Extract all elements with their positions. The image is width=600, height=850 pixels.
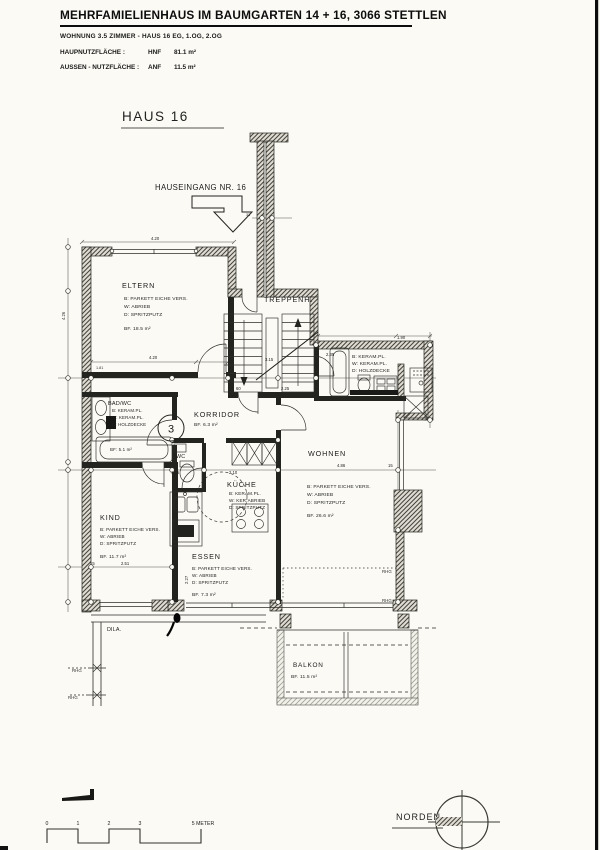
haus-label-group: HAUS 16 HAUSEINGANG NR. 16 bbox=[121, 109, 252, 232]
dim-left-small: 1.81 bbox=[96, 366, 103, 370]
dim-stair-width: 3.15 bbox=[265, 357, 274, 362]
balkon-area: BF. 11.5 m² bbox=[291, 674, 318, 680]
room-eltern-label: ELTERN bbox=[122, 281, 155, 290]
dim-kind-wall: 15 bbox=[90, 561, 95, 566]
scale-tick-1: 1 bbox=[77, 821, 80, 827]
kueche-wall-spec: W: KER.ABRIEB bbox=[229, 498, 265, 503]
floor-plan-drawing: HAUS 16 HAUSEINGANG NR. 16 bbox=[0, 0, 600, 850]
essen-ceiling-spec: D: SPRITZPUTZ bbox=[192, 580, 228, 585]
badwc-ceiling-spec: D: HOLZDECKE bbox=[112, 422, 146, 427]
room-badwc-label: BAD/WC bbox=[108, 401, 131, 407]
kind-area: BF. 11.7 m² bbox=[100, 554, 127, 560]
eltern-wall-spec: W: ABRIEB bbox=[124, 304, 150, 310]
staircase bbox=[224, 314, 318, 392]
scanned-floor-plan-page: MEHRFAMIELIENHAUS IM BAUMGARTEN 14 + 16,… bbox=[0, 0, 600, 850]
room-wc-label: WC bbox=[176, 454, 185, 460]
apartment-number: 3 bbox=[168, 424, 174, 436]
dim-wohnen-wall: 15 bbox=[388, 463, 393, 468]
badog-ceiling-spec: D: HOLZDECKE bbox=[352, 368, 391, 374]
entrance-label: HAUSEINGANG NR. 16 bbox=[155, 183, 246, 192]
eltern-floor-spec: B: PARKETT EICHE VERS. bbox=[124, 296, 188, 302]
scale-tick-3: 3 bbox=[139, 821, 142, 827]
exterior-walls bbox=[82, 133, 433, 628]
dim-entry-small: 33 bbox=[246, 213, 250, 217]
room-balkon-label: BALKON bbox=[293, 662, 324, 669]
dim-top-width: 4.20 bbox=[151, 236, 160, 241]
kitchen-fixtures bbox=[170, 441, 277, 546]
norden-label: NORDEN bbox=[396, 812, 441, 822]
dila-label: DILA. bbox=[107, 627, 121, 633]
kind-wall-spec: W: ABRIEB bbox=[100, 534, 125, 539]
essen-area: BF. 7.3 m² bbox=[192, 592, 216, 598]
kueche-floor-spec: B: KERAM.PL. bbox=[229, 491, 261, 496]
badwc-floor-spec: B: KERAM.PL. bbox=[112, 408, 143, 413]
wohnen-floor-spec: B: PARKETT EICHE VERS. bbox=[307, 484, 371, 490]
eltern-area: BF. 18.5 m² bbox=[124, 326, 151, 332]
room-kind-label: KIND bbox=[100, 513, 121, 522]
scale-end-label: 5 METER bbox=[192, 821, 215, 827]
wohnen-area: BF. 26.6 m² bbox=[307, 513, 334, 519]
wohnen-wall-spec: W: ABRIEB bbox=[307, 492, 333, 498]
room-treppenhaus-label: TREPPENH. bbox=[264, 295, 313, 304]
essen-wall-spec: W: ABRIEB bbox=[192, 573, 217, 578]
dim-kueche-width: 2.10 bbox=[229, 470, 238, 475]
rhg-label-4: RHG bbox=[382, 598, 392, 603]
kind-floor-spec: B: PARKETT EICHE VERS. bbox=[100, 527, 160, 532]
kind-ceiling-spec: D: SPRITZPUTZ bbox=[100, 541, 136, 546]
dim-wc-width: 1.35 bbox=[171, 470, 180, 475]
dim-eltern-height: 4.26 bbox=[61, 311, 66, 320]
eltern-ceiling-spec: D: SPRITZPUTZ bbox=[124, 312, 162, 318]
dim-kind-width: 2.51 bbox=[121, 561, 130, 566]
rhg-label-1: RHG bbox=[72, 668, 82, 673]
scale-bar: 0 1 2 3 5 METER bbox=[46, 789, 215, 843]
room-essen-label: ESSEN bbox=[192, 552, 221, 561]
dim-essen-height: 2.27 bbox=[184, 575, 189, 584]
badwc-wall-spec: W: KERAM.PL. bbox=[112, 415, 144, 420]
compass-needle-icon bbox=[436, 817, 462, 826]
scale-tick-0: 0 bbox=[46, 821, 49, 827]
dim-bath-width: 2.35 bbox=[326, 352, 335, 357]
rhg-label-3: RHG bbox=[382, 569, 392, 574]
rhg-label-2: RHG bbox=[68, 695, 78, 700]
badog-floor-spec: B: KERAM.PL. bbox=[352, 354, 386, 360]
haus-label: HAUS 16 bbox=[122, 109, 189, 124]
wohnen-ceiling-spec: D: SPRITZPUTZ bbox=[307, 500, 345, 506]
dim-wohnen-width: 4.86 bbox=[337, 463, 346, 468]
room-korridor-label: KORRIDOR bbox=[194, 410, 240, 419]
scan-mark bbox=[62, 789, 94, 801]
entrance-arrow-icon bbox=[192, 196, 252, 232]
north-compass: NORDEN bbox=[392, 790, 500, 850]
badog-wall-spec: W: KERAM.PL. bbox=[352, 361, 387, 367]
scale-tick-2: 2 bbox=[108, 821, 111, 827]
dim-stair-depth: 2.25 bbox=[281, 386, 290, 391]
dim-eltern-width: 4.20 bbox=[149, 355, 158, 360]
windows bbox=[100, 249, 404, 608]
kueche-ceiling-spec: D: SPRITZPUTZ bbox=[229, 505, 265, 510]
balcony bbox=[240, 568, 438, 705]
room-kueche-label: KÜCHE bbox=[227, 480, 257, 489]
essen-floor-spec: B: PARKETT EICHE VERS. bbox=[192, 566, 252, 571]
dim-stair-small: 60 bbox=[236, 386, 241, 391]
dim-bath-top: 1.90 bbox=[397, 335, 406, 340]
room-wohnen-label: WOHNEN bbox=[308, 449, 346, 458]
badwc-area: BF: 5.1 m² bbox=[110, 447, 132, 452]
korridor-area: BF. 6.3 m² bbox=[194, 422, 218, 428]
ink-blot bbox=[174, 613, 181, 623]
dilatation-joint bbox=[68, 613, 266, 706]
